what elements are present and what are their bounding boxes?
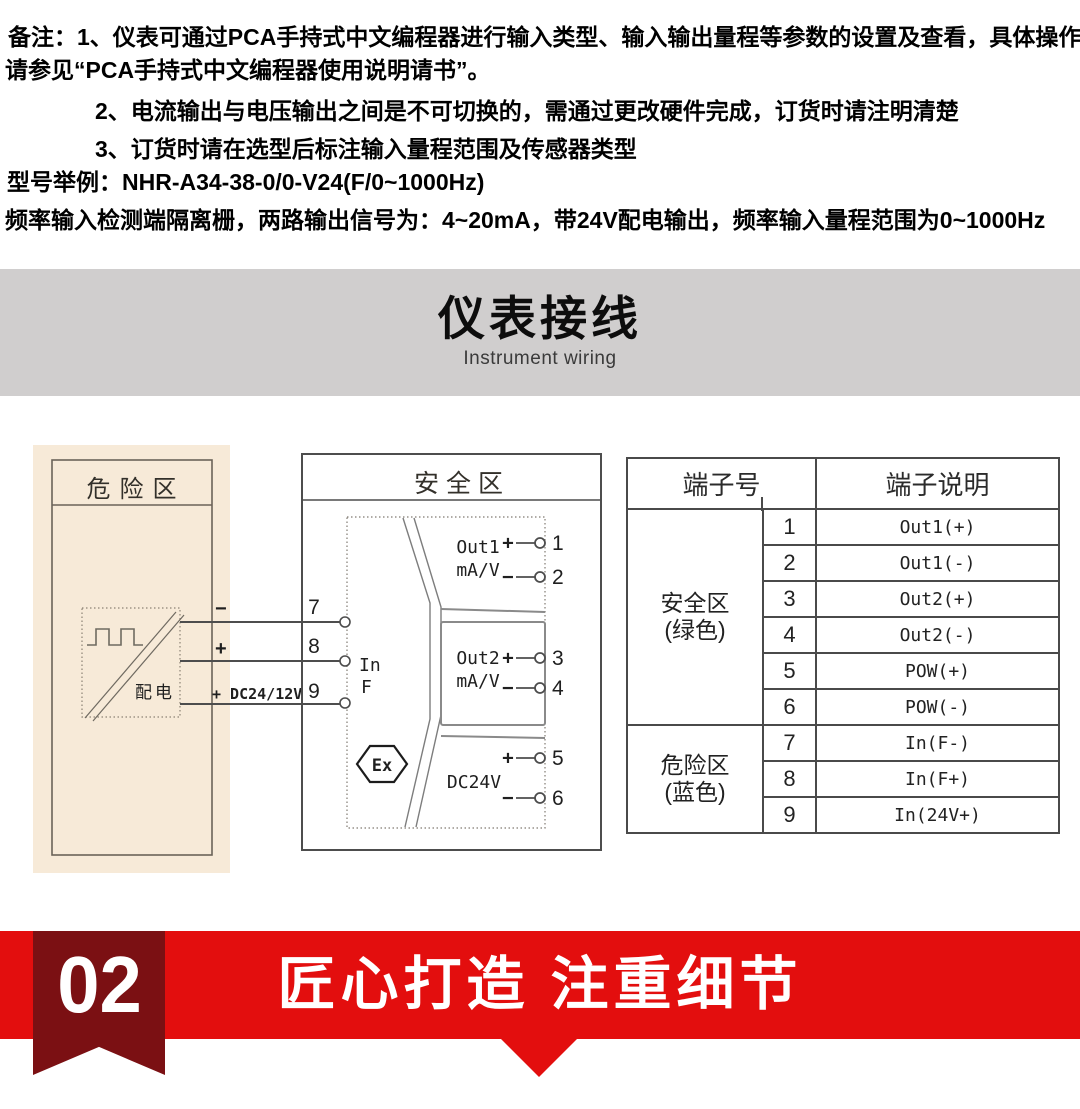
table-row: 7	[763, 725, 816, 761]
group-label-safe-area: 安全区 (绿色)	[627, 509, 763, 725]
power-dist-label: 配电	[135, 683, 175, 702]
terminal-1-sign: +	[502, 532, 513, 554]
section-banner: 仪表接线 Instrument wiring	[0, 269, 1080, 396]
table-row: 5	[763, 653, 816, 689]
terminal-6-number: 6	[552, 787, 564, 810]
section-title: 仪表接线	[0, 293, 1080, 345]
terminal-1-number: 1	[552, 532, 564, 555]
terminal-table-wrap: 端子号 端子说明 安全区 (绿色) 1 Out1(+) 2 Out1(-) 3 …	[626, 457, 1060, 834]
footer-banner-pointer	[500, 1038, 578, 1077]
terminal-5-sign: +	[502, 747, 513, 769]
footer-badge-ribbon: 02	[33, 931, 165, 1075]
footer-badge-number: 02	[57, 931, 142, 1039]
wire-label-plus: +	[215, 638, 227, 660]
terminal-4-sign: −	[502, 677, 513, 699]
table-row: 6	[763, 689, 816, 725]
product-description-line: 频率输入检测端隔离栅，两路输出信号为：4~20mA，带24V配电输出，频率输入量…	[5, 201, 1045, 235]
section-subtitle: Instrument wiring	[0, 348, 1080, 370]
table-row: 8	[763, 761, 816, 797]
terminal-9-circle	[340, 698, 350, 708]
note-line-2: 请参见“PCA手持式中文编程器使用说明请书”。	[5, 51, 491, 85]
product-detail-page: 备注：1、仪表可通过PCA手持式中文编程器进行输入类型、输入输出量程等参数的设置…	[0, 0, 1080, 1109]
table-header-stub-line	[761, 497, 763, 511]
note-line-3: 2、电流输出与电压输出之间是不可切换的，需通过更改硬件完成，订货时请注明清楚	[95, 92, 959, 126]
terminal-8-circle	[340, 656, 350, 666]
table-row: 2	[763, 545, 816, 581]
terminal-7-circle	[340, 617, 350, 627]
input-label-f: F	[361, 677, 372, 698]
table-row: 9	[763, 797, 816, 833]
danger-zone-panel	[33, 445, 230, 873]
wire-label-minus: −	[215, 598, 227, 620]
dc24v-compartment-top	[441, 736, 545, 738]
terminal-6-sign: −	[502, 787, 513, 809]
input-label-in: In	[359, 655, 381, 676]
terminal-5-number: 5	[552, 747, 564, 770]
note-line-4: 3、订货时请在选型后标注输入量程范围及传感器类型	[95, 130, 637, 164]
note-line-1: 备注：1、仪表可通过PCA手持式中文编程器进行输入类型、输入输出量程等参数的设置…	[8, 18, 1080, 52]
terminal-4-number: 4	[552, 677, 564, 700]
right-terminals	[516, 538, 545, 803]
out1-unit: mA/V	[456, 560, 500, 581]
wire-label-dc24: + DC24/12V	[212, 685, 302, 703]
terminal-2-number: 2	[552, 566, 564, 589]
danger-zone-title: 危险区	[87, 476, 186, 503]
wiring-diagram: 危险区 配电 − + + DC24/12V 安全区 7 8 9 I	[0, 440, 620, 890]
out2-label: Out2	[456, 648, 499, 669]
out1-compartment-bottom	[441, 609, 545, 612]
table-row: 3	[763, 581, 816, 617]
out1-label: Out1	[456, 537, 499, 558]
terminal-3-sign: +	[502, 647, 513, 669]
terminal-table: 端子号 端子说明 安全区 (绿色) 1 Out1(+) 2 Out1(-) 3 …	[626, 457, 1060, 834]
terminal-2-sign: −	[502, 566, 513, 588]
safe-zone-title: 安全区	[414, 470, 510, 498]
table-row: 4	[763, 617, 816, 653]
dc24v-label: DC24V	[447, 772, 501, 793]
terminal-3-number: 3	[552, 647, 564, 670]
model-example-line: 型号举例：NHR-A34-38-0/0-V24(F/0~1000Hz)	[7, 163, 484, 197]
terminal-9-number: 9	[308, 680, 320, 703]
terminal-8-number: 8	[308, 635, 320, 658]
terminal-7-number: 7	[308, 596, 320, 619]
group-label-danger-area: 危险区 (蓝色)	[627, 725, 763, 833]
out2-unit: mA/V	[456, 671, 500, 692]
ex-label: Ex	[372, 756, 392, 776]
table-header-terminal-desc: 端子说明	[816, 458, 1059, 509]
table-header-terminal-no: 端子号	[627, 458, 816, 509]
table-row: 1	[763, 509, 816, 545]
